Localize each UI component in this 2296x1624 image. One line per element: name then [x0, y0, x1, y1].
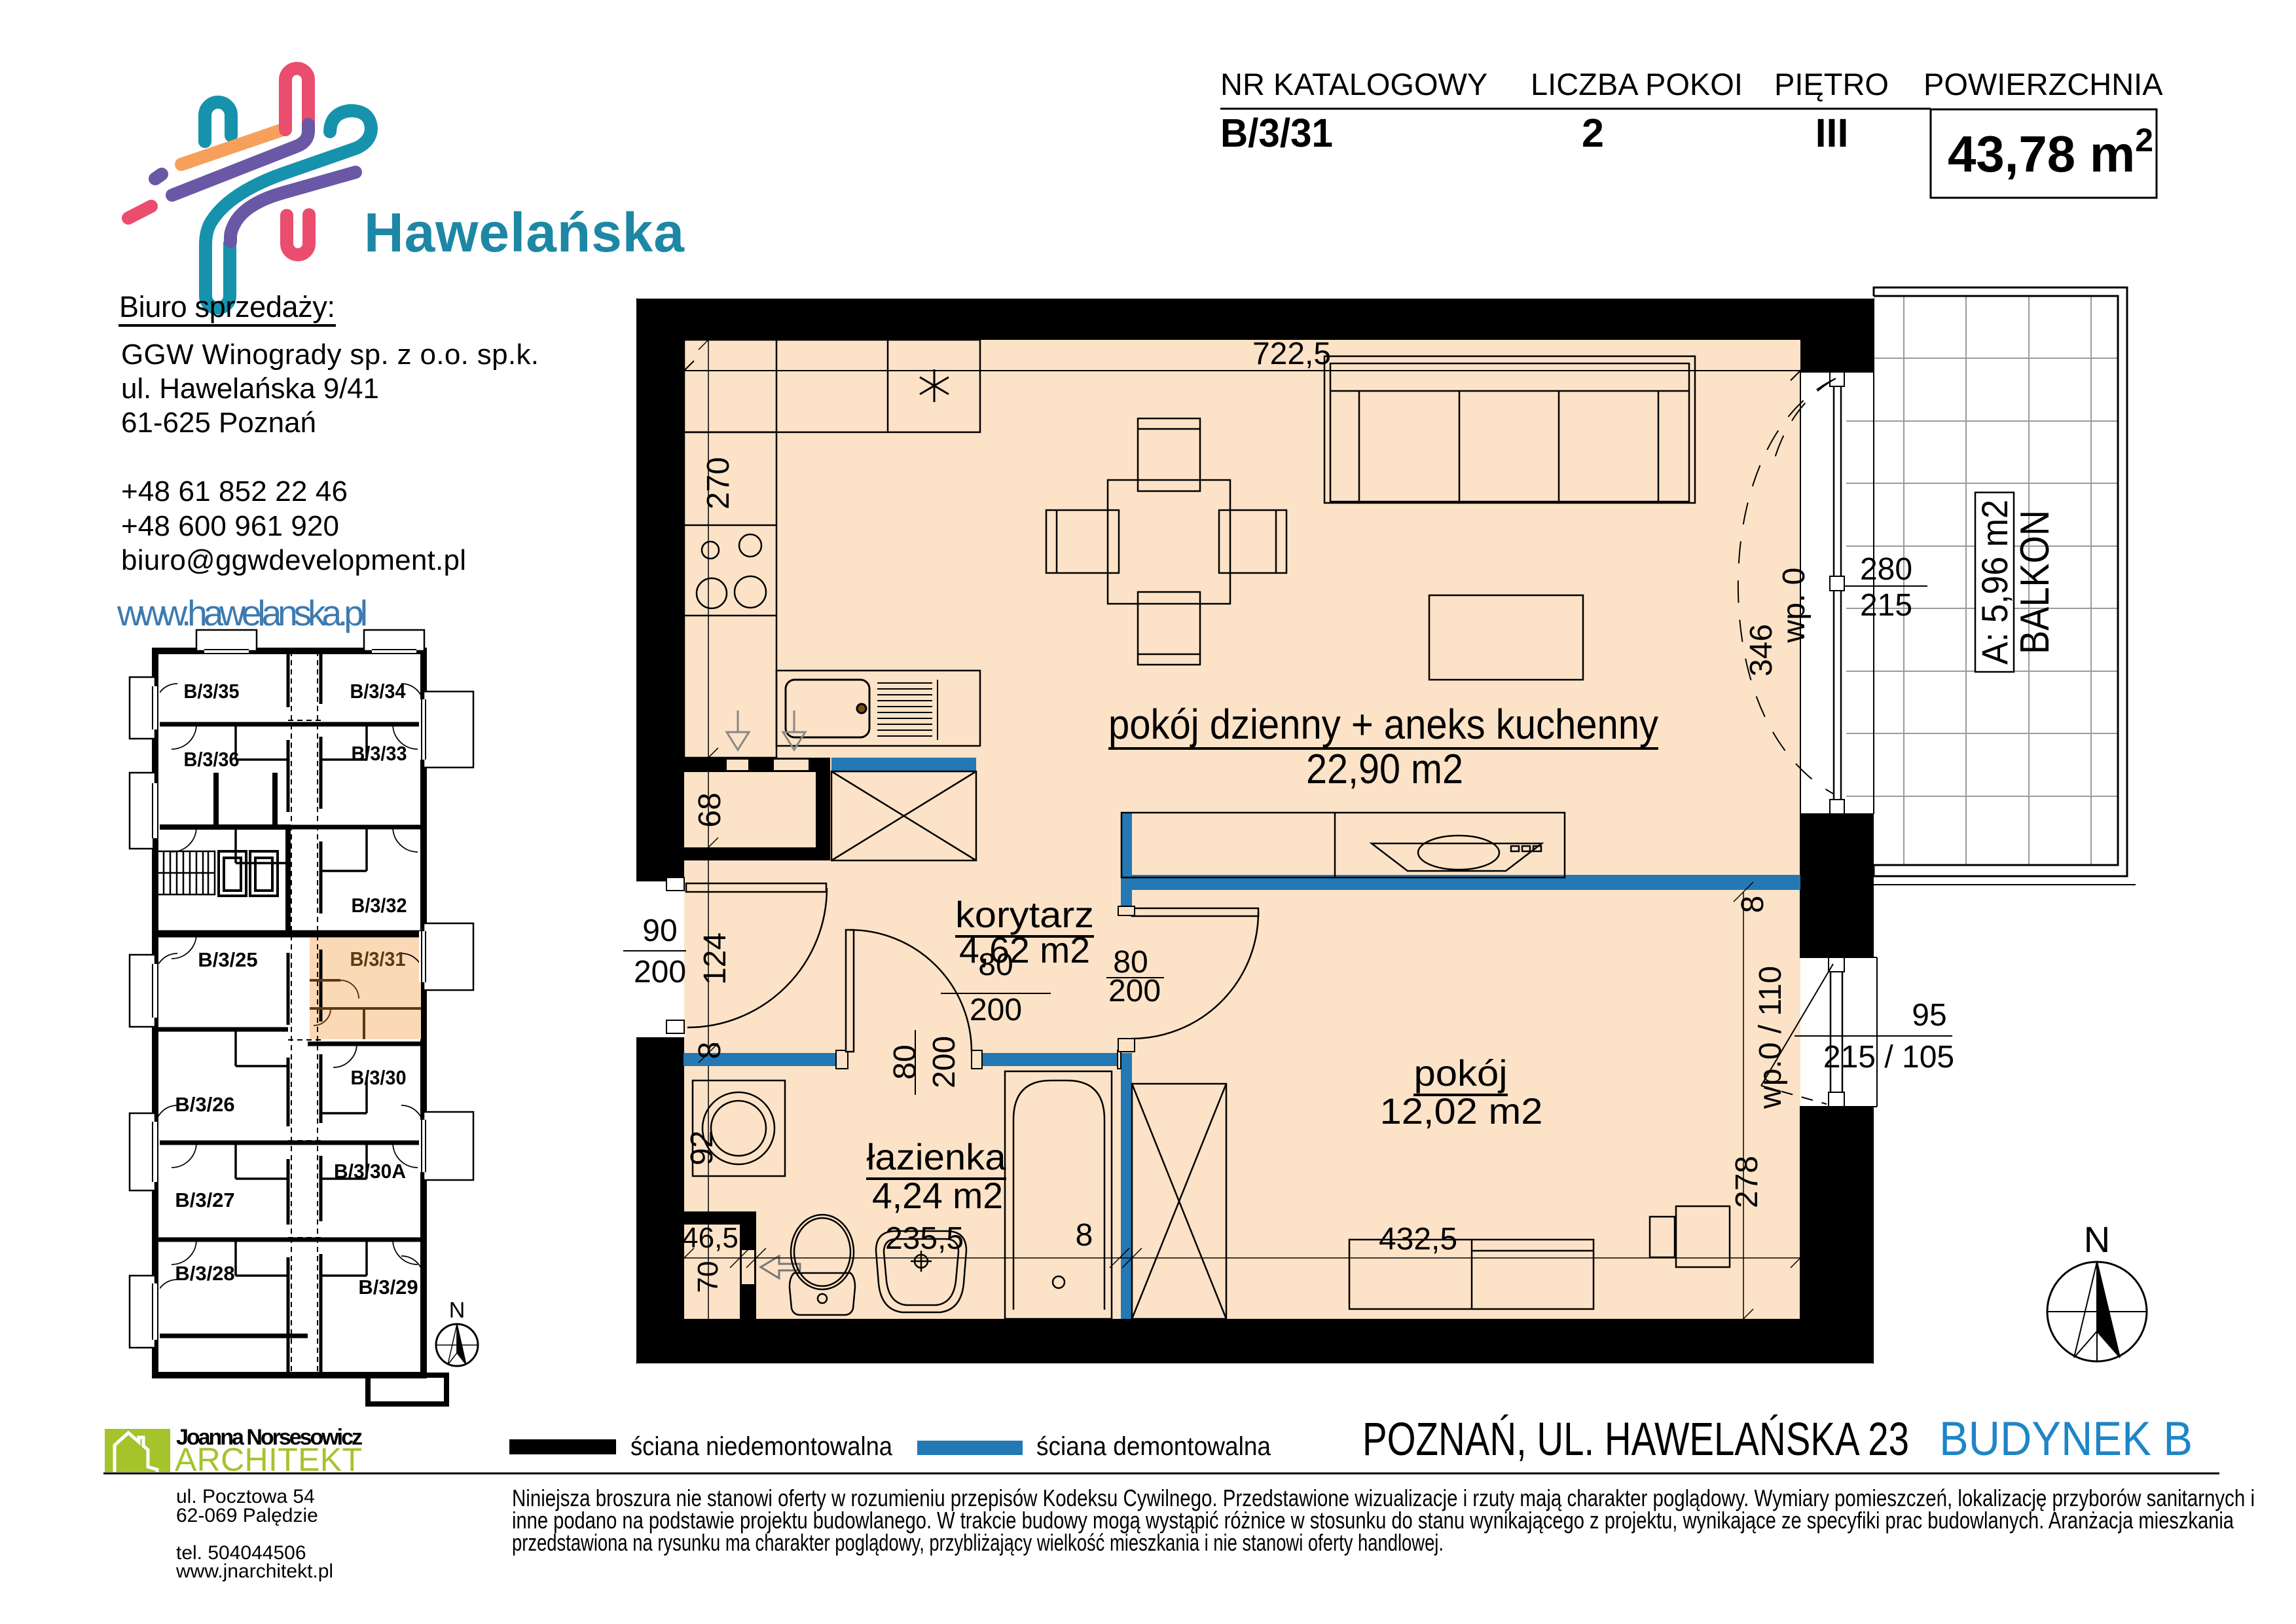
svg-text:www.hawelanska.pl: www.hawelanska.pl — [117, 593, 368, 633]
svg-text:B/3/25: B/3/25 — [198, 948, 257, 971]
svg-text:B/3/35: B/3/35 — [184, 680, 240, 703]
svg-text:wp. 0: wp. 0 — [1777, 568, 1812, 644]
svg-text:B/3/27: B/3/27 — [175, 1189, 234, 1211]
svg-text:łazienka: łazienka — [867, 1136, 1007, 1177]
svg-text:biuro@ggwdevelopment.pl: biuro@ggwdevelopment.pl — [121, 544, 466, 576]
svg-text:200: 200 — [927, 1036, 962, 1088]
svg-text:B/3/26: B/3/26 — [175, 1093, 234, 1116]
svg-text:432,5: 432,5 — [1379, 1222, 1457, 1257]
svg-text:46,5: 46,5 — [682, 1222, 738, 1254]
svg-text:B/3/34: B/3/34 — [350, 680, 407, 703]
svg-text:ściana demontowalna: ściana demontowalna — [1036, 1432, 1271, 1461]
svg-text:www.jnarchitekt.pl: www.jnarchitekt.pl — [175, 1560, 333, 1582]
svg-text:+48 61 852 22 46: +48 61 852 22 46 — [121, 475, 348, 507]
svg-text:POWIERZCHNIA: POWIERZCHNIA — [1923, 67, 2163, 101]
svg-text:270: 270 — [701, 457, 736, 509]
svg-text:BUDYNEK B: BUDYNEK B — [1939, 1412, 2193, 1466]
svg-text:8: 8 — [1076, 1218, 1093, 1253]
svg-text:B/3/28: B/3/28 — [175, 1262, 234, 1285]
svg-text:NR KATALOGOWY: NR KATALOGOWY — [1220, 67, 1487, 101]
svg-text:200: 200 — [1108, 974, 1161, 1008]
svg-text:95: 95 — [1912, 998, 1946, 1033]
svg-text:POZNAŃ, UL. HAWELAŃSKA 23: POZNAŃ, UL. HAWELAŃSKA 23 — [1362, 1414, 1909, 1466]
svg-text:12,02 m2: 12,02 m2 — [1380, 1090, 1543, 1132]
svg-text:GGW Winogrady sp. z o.o. sp.k.: GGW Winogrady sp. z o.o. sp.k. — [121, 339, 539, 371]
svg-text:LICZBA POKOI: LICZBA POKOI — [1531, 67, 1743, 101]
svg-text:722,5: 722,5 — [1252, 337, 1331, 371]
svg-text:BALKON: BALKON — [2013, 510, 2058, 654]
svg-text:wp.0 / 110: wp.0 / 110 — [1753, 966, 1788, 1109]
svg-text:przedstawiona na rysunku ma ch: przedstawiona na rysunku ma charakter po… — [512, 1529, 1444, 1556]
svg-text:235,5: 235,5 — [885, 1221, 964, 1256]
svg-text:III: III — [1815, 111, 1849, 155]
svg-text:pokój dzienny + aneks kuchenny: pokój dzienny + aneks kuchenny — [1108, 701, 1658, 748]
svg-text:8: 8 — [1736, 896, 1770, 913]
svg-text:80: 80 — [888, 1044, 922, 1079]
svg-text:B/3/36: B/3/36 — [184, 748, 240, 771]
svg-text:B/3/31: B/3/31 — [1220, 111, 1333, 155]
svg-text:B/3/30: B/3/30 — [351, 1066, 407, 1089]
svg-text:pokój: pokój — [1414, 1052, 1508, 1094]
svg-text:Hawelańska: Hawelańska — [364, 202, 685, 263]
svg-text:4,24 m2: 4,24 m2 — [872, 1175, 1003, 1216]
svg-text:278: 278 — [1730, 1156, 1764, 1208]
svg-text:ściana niedemontowalna: ściana niedemontowalna — [630, 1432, 893, 1461]
svg-text:Biuro sprzedaży:: Biuro sprzedaży: — [119, 290, 335, 323]
svg-text:280: 280 — [1860, 552, 1912, 587]
svg-text:2: 2 — [1582, 111, 1604, 155]
svg-text:43,78 m2: 43,78 m2 — [1948, 122, 2153, 183]
svg-text:A: 5,96 m2: A: 5,96 m2 — [1974, 500, 2015, 665]
svg-text:90: 90 — [642, 913, 677, 948]
svg-text:200: 200 — [970, 993, 1022, 1027]
svg-text:B/3/31: B/3/31 — [350, 948, 406, 970]
svg-text:92: 92 — [685, 1130, 720, 1165]
svg-text:N: N — [449, 1298, 465, 1323]
svg-text:200: 200 — [634, 955, 686, 989]
svg-text:PIĘTRO: PIĘTRO — [1774, 67, 1889, 101]
svg-text:215: 215 — [1860, 588, 1912, 623]
svg-text:+48 600 961 920: +48 600 961 920 — [121, 510, 339, 542]
svg-text:B/3/29: B/3/29 — [358, 1276, 418, 1299]
svg-text:B/3/32: B/3/32 — [352, 894, 407, 917]
svg-text:62-069 Palędzie: 62-069 Palędzie — [176, 1505, 318, 1526]
svg-text:215 / 105: 215 / 105 — [1823, 1040, 1954, 1075]
svg-text:8: 8 — [693, 1042, 727, 1060]
svg-text:B/3/33: B/3/33 — [352, 742, 407, 765]
svg-text:124: 124 — [698, 932, 733, 985]
svg-text:22,90 m2: 22,90 m2 — [1306, 745, 1463, 792]
svg-text:N: N — [2084, 1219, 2110, 1260]
svg-text:4,62 m2: 4,62 m2 — [959, 929, 1090, 970]
svg-text:346: 346 — [1744, 624, 1779, 676]
svg-text:61-625 Poznań: 61-625 Poznań — [121, 407, 316, 439]
svg-text:B/3/30A: B/3/30A — [334, 1160, 406, 1183]
svg-text:68: 68 — [693, 792, 727, 827]
svg-text:ul. Hawelańska 9/41: ul. Hawelańska 9/41 — [121, 373, 379, 405]
svg-text:70: 70 — [692, 1261, 724, 1293]
